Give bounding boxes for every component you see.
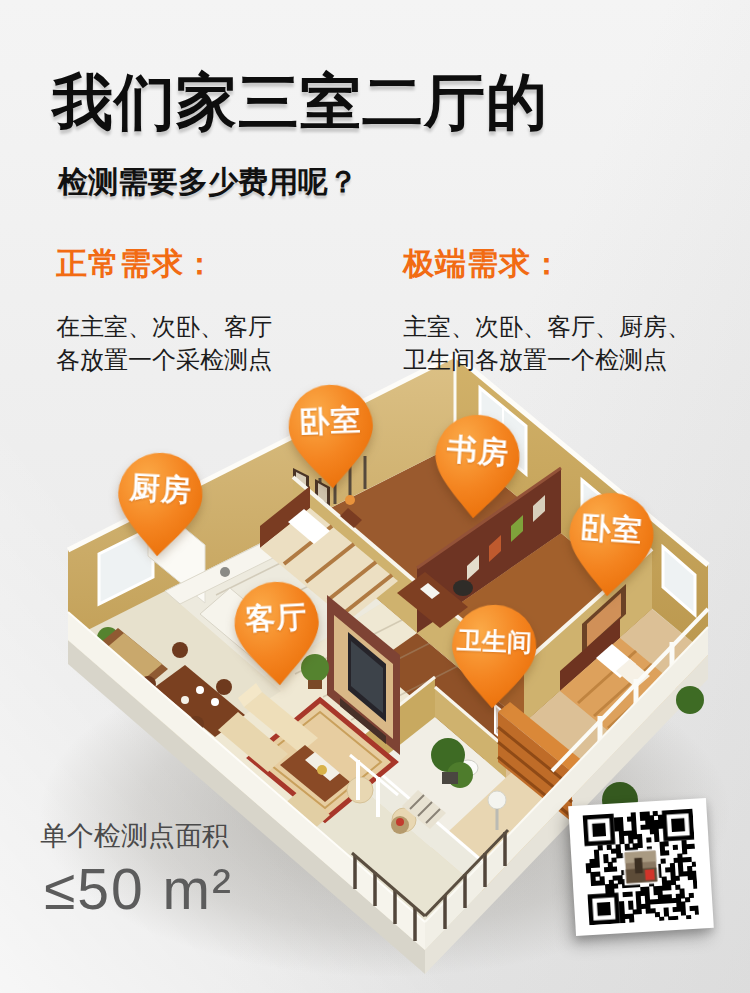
pin-label-bathroom: 卫生间 — [449, 602, 540, 682]
page-subtitle: 检测需要多少费用呢？ — [58, 162, 548, 203]
map-pin-living-room: 客厅 — [230, 578, 323, 689]
qr-card — [568, 798, 714, 936]
poster: 我们家三室二厅的 检测需要多少费用呢？ 正常需求： 在主室、次卧、客厅 各放置一… — [0, 0, 750, 993]
requirement-extreme-heading: 极端需求： — [403, 243, 691, 285]
area-label: 单个检测点面积 — [40, 818, 229, 854]
requirement-normal: 正常需求： 在主室、次卧、客厅 各放置一个采检测点 — [56, 243, 272, 376]
requirement-normal-heading: 正常需求： — [56, 243, 272, 285]
requirement-normal-line-2: 各放置一个采检测点 — [56, 343, 272, 376]
requirement-extreme-line-2: 卫生间各放置一个检测点 — [403, 343, 691, 376]
qr-code — [583, 809, 700, 926]
requirement-extreme-line-1: 主室、次卧、客厅、厨房、 — [403, 310, 691, 343]
requirement-extreme: 极端需求： 主室、次卧、客厅、厨房、 卫生间各放置一个检测点 — [403, 243, 691, 376]
pin-label-bedroom-right: 卧室 — [565, 488, 658, 571]
pin-label-bedroom-top: 卧室 — [285, 382, 376, 462]
pin-label-kitchen: 厨房 — [115, 449, 207, 531]
map-pin-bedroom-top: 卧室 — [285, 382, 377, 492]
pin-label-study: 书房 — [431, 410, 524, 493]
pin-label-living-room: 客厅 — [230, 578, 322, 660]
map-pin-bathroom: 卫生间 — [448, 602, 540, 712]
header: 我们家三室二厅的 检测需要多少费用呢？ — [52, 70, 548, 203]
requirement-normal-line-1: 在主室、次卧、客厅 — [56, 310, 272, 343]
map-pin-bedroom-right: 卧室 — [563, 488, 658, 601]
map-pin-study: 书房 — [429, 410, 524, 523]
page-title: 我们家三室二厅的 — [52, 70, 548, 134]
area-value: ≤50 m² — [44, 856, 233, 922]
map-pin-kitchen: 厨房 — [113, 449, 206, 560]
